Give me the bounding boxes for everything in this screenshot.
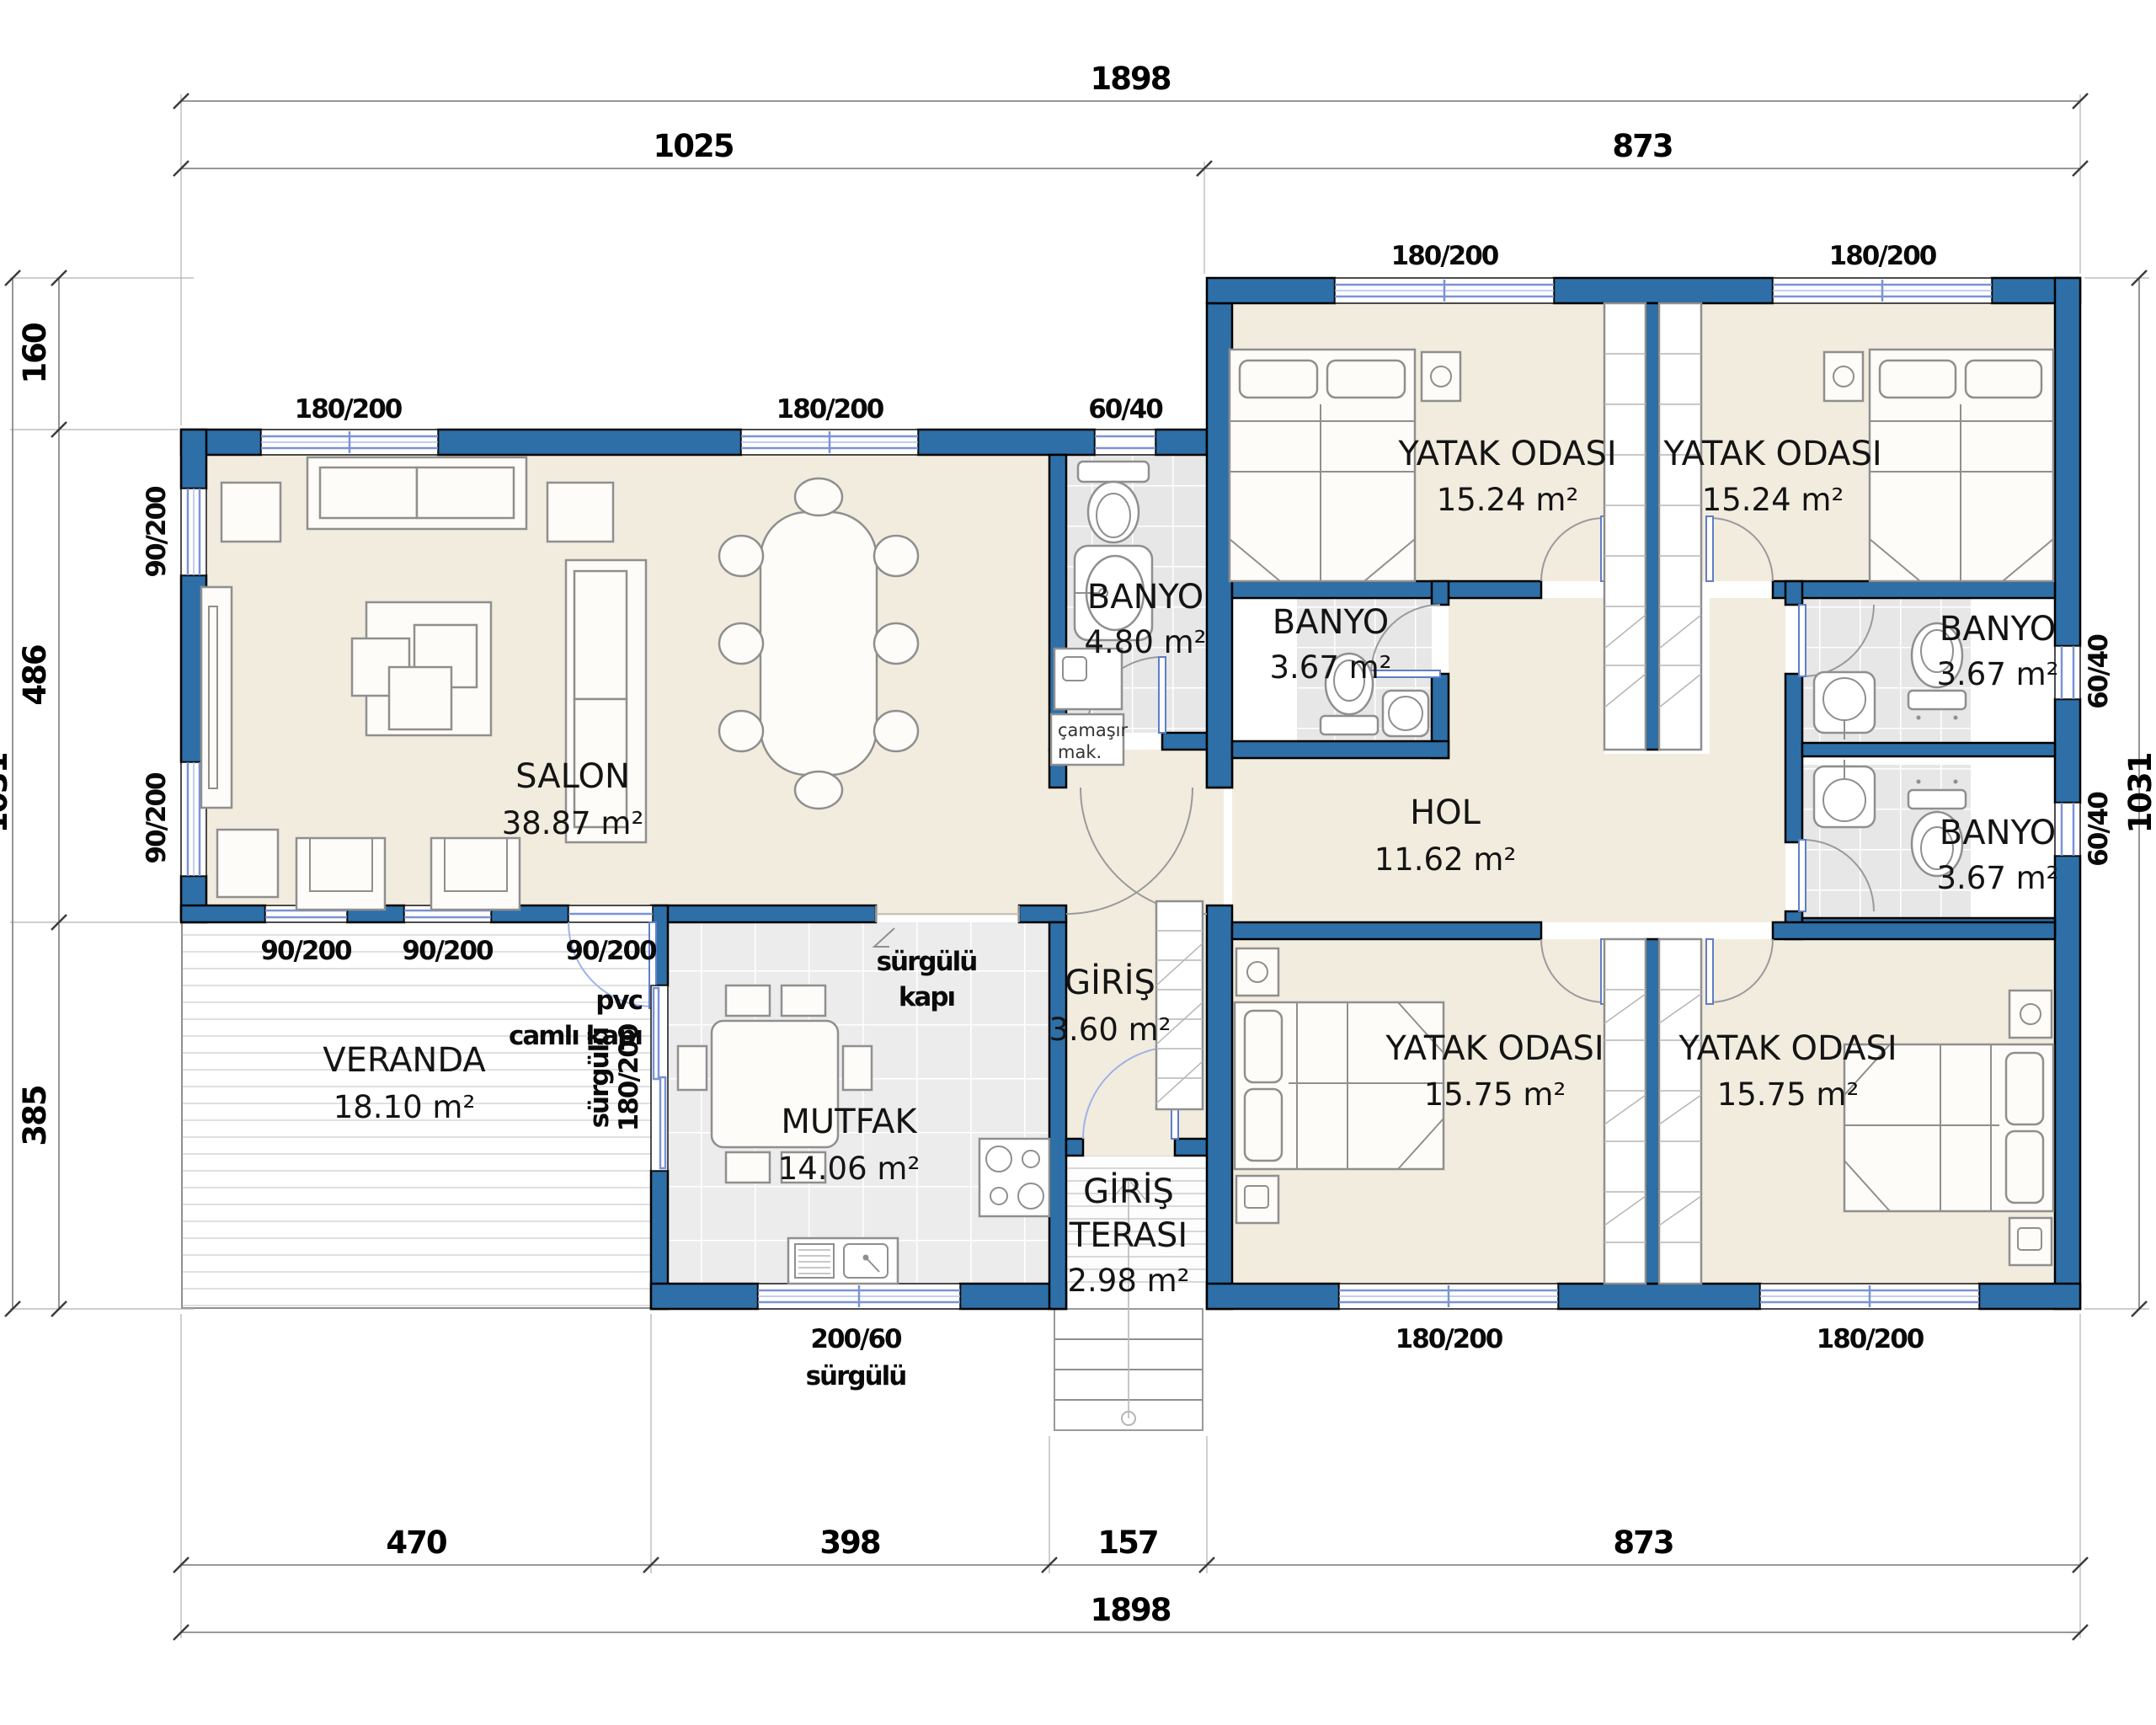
kitchen-stove bbox=[979, 1139, 1049, 1216]
dim-bottom-overall: 1898 bbox=[1091, 1592, 1171, 1628]
banyo4-sink bbox=[1814, 760, 1875, 827]
door-kitchen-veranda-sliding bbox=[651, 985, 668, 1171]
label-kitchen-veranda-size: 180/200 bbox=[614, 1023, 644, 1131]
label-window-bedroom4-bottom: 180/200 bbox=[1817, 1324, 1924, 1354]
label-giris-terasi-area: 2.98 m² bbox=[1067, 1263, 1189, 1299]
hol-upper-left-floor bbox=[1449, 598, 1604, 758]
floor-plan-page: 1898 1025 873 470 398 157 873 1898 160 4… bbox=[0, 0, 2156, 1725]
label-mutfak-area: 14.06 m² bbox=[778, 1151, 921, 1187]
floor-plan-drawing: 1898 1025 873 470 398 157 873 1898 160 4… bbox=[0, 0, 2156, 1725]
dim-top-right: 873 bbox=[1612, 128, 1672, 164]
label-window-salon-left-2: 90/200 bbox=[141, 772, 172, 864]
window-kitchen-bottom bbox=[758, 1284, 960, 1309]
dim-left-3: 385 bbox=[17, 1086, 53, 1146]
dim-right-overall: 1031 bbox=[2122, 753, 2156, 833]
label-banyo1-name: BANYO bbox=[1087, 578, 1203, 617]
dim-left-2: 486 bbox=[17, 645, 53, 705]
label-kitchen-bottom-2: sürgülü bbox=[806, 1361, 906, 1391]
label-window-veranda-2: 90/200 bbox=[402, 936, 494, 966]
label-banyo3-name: BANYO bbox=[1940, 610, 2056, 649]
closet-giris bbox=[1156, 901, 1203, 1109]
label-washer-2: mak. bbox=[1058, 742, 1102, 762]
window-bedroom3-bottom bbox=[1339, 1284, 1558, 1309]
banyo3-sink bbox=[1814, 672, 1875, 740]
label-banyo1-area: 4.80 m² bbox=[1084, 624, 1206, 660]
salon-long-sofa bbox=[566, 560, 646, 842]
label-giris-name: GİRİŞ bbox=[1065, 962, 1155, 1002]
label-window-salon-top-1: 180/200 bbox=[295, 394, 403, 425]
label-window-veranda-1: 90/200 bbox=[260, 936, 352, 966]
label-yatak4-name: YATAK ODASI bbox=[1678, 1029, 1897, 1068]
label-hol-area: 11.62 m² bbox=[1374, 841, 1517, 878]
window-bedroom2-top bbox=[1773, 278, 1992, 303]
hol-upper-right-floor bbox=[1710, 598, 1785, 758]
label-veranda-area: 18.10 m² bbox=[334, 1089, 476, 1125]
label-kitchen-sliding-2: kapı bbox=[899, 982, 955, 1012]
label-door-pvc-note-1: pvc bbox=[595, 985, 642, 1016]
label-window-bedroom1-top: 180/200 bbox=[1391, 241, 1499, 271]
label-yatak1-name: YATAK ODASI bbox=[1397, 435, 1616, 473]
label-yatak3-area: 15.75 m² bbox=[1424, 1076, 1566, 1113]
label-kitchen-veranda-type: sürgülü bbox=[584, 1028, 615, 1129]
salon-coffee-tables bbox=[352, 602, 491, 735]
label-yatak1-area: 15.24 m² bbox=[1437, 482, 1579, 518]
label-salon-name: SALON bbox=[515, 757, 630, 796]
label-yatak4-area: 15.75 m² bbox=[1717, 1076, 1860, 1113]
window-bedroom1-top bbox=[1335, 278, 1554, 303]
salon-armchair-1 bbox=[296, 838, 385, 910]
salon-tv-unit bbox=[201, 587, 232, 808]
label-banyo4-name: BANYO bbox=[1940, 814, 2056, 852]
hol-floor bbox=[1232, 754, 1785, 922]
label-banyo2-area: 3.67 m² bbox=[1269, 649, 1391, 686]
dim-bottom-4: 873 bbox=[1613, 1525, 1673, 1561]
label-banyo4-area: 3.67 m² bbox=[1936, 860, 2058, 896]
label-yatak2-area: 15.24 m² bbox=[1702, 482, 1844, 518]
label-kitchen-sliding-1: sürgülü bbox=[877, 947, 977, 977]
window-salon-top-2 bbox=[741, 430, 918, 455]
dim-top-overall: 1898 bbox=[1091, 61, 1171, 97]
label-banyo2-name: BANYO bbox=[1273, 603, 1389, 642]
label-veranda-name: VERANDA bbox=[323, 1041, 486, 1080]
label-window-salon-top-2: 180/200 bbox=[776, 394, 884, 425]
salon-armchair-2 bbox=[431, 838, 520, 910]
salon-sofa bbox=[307, 457, 526, 529]
dim-bottom-2: 398 bbox=[819, 1525, 879, 1561]
dim-left-1: 160 bbox=[17, 323, 53, 383]
window-salon-top-1 bbox=[261, 430, 438, 455]
label-salon-area: 38.87 m² bbox=[502, 805, 644, 841]
label-window-salon-left-1: 90/200 bbox=[141, 486, 172, 578]
kitchen-sink-unit bbox=[788, 1238, 898, 1284]
label-giris-area: 3.60 m² bbox=[1049, 1012, 1171, 1048]
window-salon-left-1 bbox=[181, 489, 206, 575]
window-banyo4-right bbox=[2055, 803, 2080, 856]
label-door-pvc-size: 90/200 bbox=[565, 936, 657, 966]
label-mutfak-name: MUTFAK bbox=[781, 1103, 918, 1141]
salon-side-table-2 bbox=[547, 483, 613, 542]
label-yatak2-name: YATAK ODASI bbox=[1662, 435, 1881, 473]
label-window-banyo3-right: 60/40 bbox=[2084, 634, 2114, 709]
dim-bottom-3: 157 bbox=[1097, 1525, 1157, 1561]
salon-side-table-3 bbox=[217, 830, 278, 897]
label-washer-1: çamaşır bbox=[1058, 720, 1129, 740]
banyo2-sink bbox=[1383, 691, 1428, 736]
label-giris-terasi-name-2: TERASI bbox=[1069, 1216, 1187, 1255]
label-yatak3-name: YATAK ODASI bbox=[1385, 1029, 1604, 1068]
label-window-banyo4-right: 60/40 bbox=[2084, 792, 2114, 867]
label-hol-name: HOL bbox=[1410, 793, 1481, 832]
label-giris-terasi-name-1: GİRİŞ bbox=[1083, 1171, 1174, 1211]
label-kitchen-bottom-1: 200/60 bbox=[810, 1324, 902, 1354]
dim-top-left: 1025 bbox=[654, 128, 734, 164]
label-window-bedroom3-bottom: 180/200 bbox=[1396, 1324, 1503, 1354]
dim-left-overall: 1031 bbox=[0, 753, 14, 833]
dim-bottom-1: 470 bbox=[386, 1525, 446, 1561]
window-banyo1-top bbox=[1095, 430, 1155, 455]
salon-side-table-1 bbox=[221, 483, 280, 542]
label-window-bedroom2-top: 180/200 bbox=[1829, 241, 1937, 271]
label-window-banyo1-top: 60/40 bbox=[1088, 394, 1163, 425]
label-banyo3-area: 3.67 m² bbox=[1936, 656, 2058, 692]
window-bedroom4-bottom bbox=[1760, 1284, 1979, 1309]
